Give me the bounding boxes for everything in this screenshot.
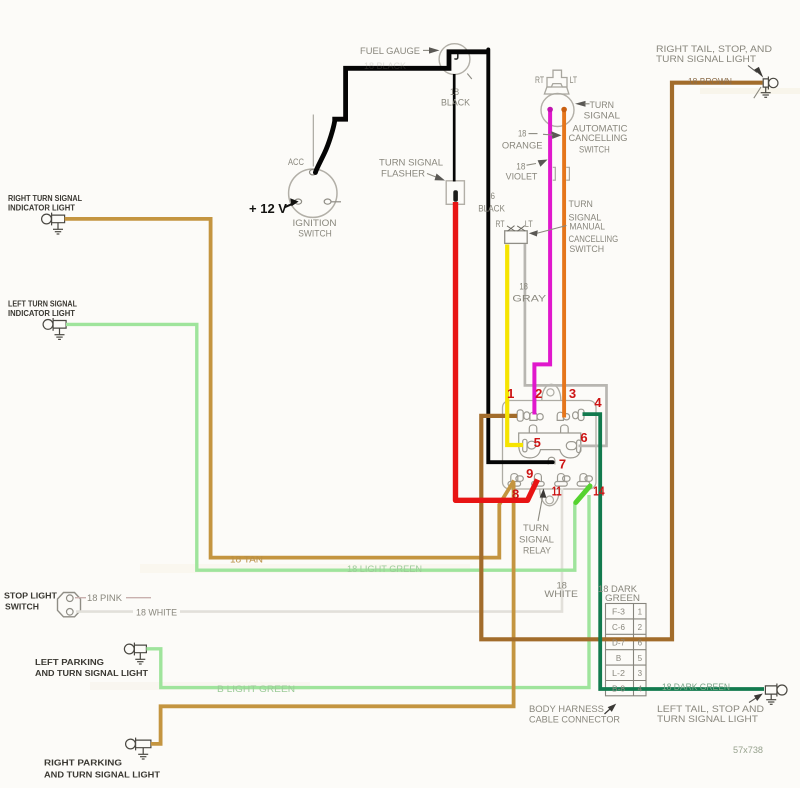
svg-text:TURN: TURN bbox=[523, 523, 549, 534]
svg-text:MANUAL: MANUAL bbox=[569, 222, 605, 233]
svg-text:TURN SIGNAL LIGHT: TURN SIGNAL LIGHT bbox=[657, 714, 758, 725]
svg-text:LEFT TURN SIGNAL: LEFT TURN SIGNAL bbox=[8, 298, 77, 308]
svg-text:8: 8 bbox=[512, 487, 519, 502]
svg-text:TURN: TURN bbox=[590, 100, 615, 111]
svg-text:2: 2 bbox=[638, 623, 643, 632]
svg-text:5: 5 bbox=[534, 435, 541, 450]
svg-text:ACC: ACC bbox=[288, 157, 304, 168]
svg-text:STOP LIGHT: STOP LIGHT bbox=[4, 590, 58, 600]
svg-text:SWITCH: SWITCH bbox=[5, 601, 39, 611]
svg-text:GRAY: GRAY bbox=[512, 294, 547, 305]
svg-text:AND TURN SIGNAL LIGHT: AND TURN SIGNAL LIGHT bbox=[35, 668, 149, 678]
svg-text:INDICATOR LIGHT: INDICATOR LIGHT bbox=[8, 203, 76, 213]
svg-text:BLACK: BLACK bbox=[441, 98, 471, 109]
svg-text:RT: RT bbox=[535, 75, 544, 86]
svg-text:LT: LT bbox=[570, 75, 578, 86]
svg-text:2: 2 bbox=[535, 386, 542, 401]
svg-text:FLASHER: FLASHER bbox=[381, 169, 425, 180]
svg-text:VIOLET: VIOLET bbox=[506, 172, 538, 183]
svg-text:SIGNAL: SIGNAL bbox=[584, 110, 620, 121]
svg-text:AND TURN SIGNAL LIGHT: AND TURN SIGNAL LIGHT bbox=[44, 769, 161, 779]
svg-text:RIGHT TURN SIGNAL: RIGHT TURN SIGNAL bbox=[8, 193, 82, 203]
svg-text:TURN SIGNAL LIGHT: TURN SIGNAL LIGHT bbox=[656, 54, 756, 65]
svg-text:L-2: L-2 bbox=[612, 669, 626, 678]
svg-text:CANCELLING: CANCELLING bbox=[569, 133, 628, 144]
svg-text:B: B bbox=[616, 654, 621, 663]
svg-text:F-3: F-3 bbox=[612, 608, 626, 617]
svg-text:1: 1 bbox=[638, 608, 643, 617]
svg-text:TURN: TURN bbox=[569, 199, 594, 210]
svg-text:3: 3 bbox=[638, 669, 643, 678]
svg-text:18 BLACK: 18 BLACK bbox=[364, 61, 407, 72]
svg-text:LEFT PARKING: LEFT PARKING bbox=[35, 657, 104, 667]
svg-text:SWITCH: SWITCH bbox=[579, 144, 610, 155]
svg-text:18 TAN: 18 TAN bbox=[230, 554, 263, 565]
svg-text:RIGHT PARKING: RIGHT PARKING bbox=[44, 757, 122, 767]
svg-text:11: 11 bbox=[552, 484, 562, 499]
svg-text:BLACK: BLACK bbox=[478, 204, 505, 215]
svg-text:D-7: D-7 bbox=[612, 638, 626, 647]
svg-text:18: 18 bbox=[519, 281, 528, 292]
svg-text:INDICATOR LIGHT: INDICATOR LIGHT bbox=[8, 308, 76, 318]
svg-text:SWITCH: SWITCH bbox=[569, 244, 604, 255]
svg-text:+ 12 V: + 12 V bbox=[249, 202, 288, 216]
svg-text:18 LIGHT GREEN: 18 LIGHT GREEN bbox=[347, 564, 422, 575]
svg-text:SWITCH: SWITCH bbox=[298, 228, 332, 239]
svg-text:RELAY: RELAY bbox=[523, 545, 552, 556]
svg-text:BODY HARNESS: BODY HARNESS bbox=[529, 704, 604, 715]
svg-text:GREEN: GREEN bbox=[605, 593, 640, 604]
svg-text:6: 6 bbox=[580, 430, 587, 445]
svg-text:5: 5 bbox=[638, 654, 643, 663]
svg-text:7: 7 bbox=[559, 457, 566, 472]
svg-text:18: 18 bbox=[518, 129, 527, 140]
svg-text:RT: RT bbox=[496, 219, 505, 230]
svg-text:1: 1 bbox=[507, 386, 514, 401]
svg-text:9: 9 bbox=[526, 466, 533, 481]
svg-text:C-6: C-6 bbox=[612, 623, 626, 632]
svg-text:4: 4 bbox=[638, 685, 643, 694]
svg-text:4: 4 bbox=[594, 395, 602, 410]
svg-text:CABLE CONNECTOR: CABLE CONNECTOR bbox=[529, 714, 620, 725]
svg-text:ORANGE: ORANGE bbox=[502, 141, 543, 152]
svg-text:TURN SIGNAL: TURN SIGNAL bbox=[379, 158, 443, 169]
svg-text:18 DARK GREEN: 18 DARK GREEN bbox=[662, 682, 730, 693]
svg-text:6: 6 bbox=[638, 638, 643, 647]
svg-text:WHITE: WHITE bbox=[544, 589, 578, 600]
svg-text:B LIGHT GREEN: B LIGHT GREEN bbox=[217, 684, 295, 695]
svg-text:B-8: B-8 bbox=[612, 685, 626, 694]
svg-text:18 BROWN: 18 BROWN bbox=[688, 77, 732, 88]
svg-text:3: 3 bbox=[569, 386, 576, 401]
svg-text:18: 18 bbox=[450, 87, 459, 98]
svg-text:18 PINK: 18 PINK bbox=[87, 593, 123, 604]
svg-text:18 WHITE: 18 WHITE bbox=[136, 608, 177, 619]
svg-text:SIGNAL: SIGNAL bbox=[519, 534, 554, 545]
svg-text:6: 6 bbox=[490, 191, 495, 202]
svg-text:LT: LT bbox=[525, 219, 533, 230]
svg-text:57x738: 57x738 bbox=[733, 745, 763, 755]
svg-text:FUEL GAUGE: FUEL GAUGE bbox=[360, 46, 420, 57]
svg-text:14: 14 bbox=[593, 484, 605, 499]
